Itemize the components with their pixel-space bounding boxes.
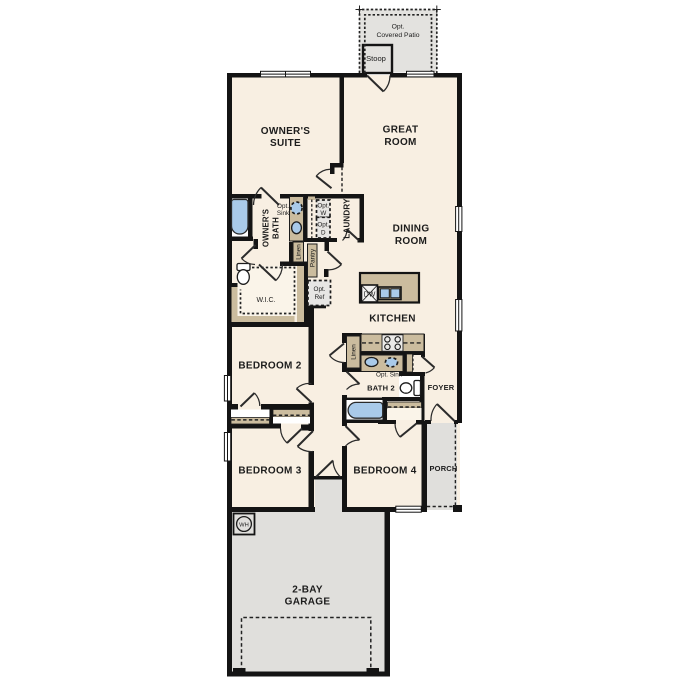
svg-text:GREAT: GREAT	[383, 125, 419, 136]
svg-text:ROOM: ROOM	[384, 137, 416, 148]
svg-text:W.I.C.: W.I.C.	[256, 297, 275, 304]
svg-text:KITCHEN: KITCHEN	[369, 314, 416, 325]
svg-text:FOYER: FOYER	[428, 383, 455, 392]
svg-text:OWNER'S: OWNER'S	[261, 126, 311, 137]
svg-text:2-BAY: 2-BAY	[292, 585, 323, 596]
svg-text:LAUNDRY: LAUNDRY	[343, 198, 352, 239]
svg-text:D: D	[321, 230, 326, 237]
svg-text:Stoop: Stoop	[366, 54, 386, 63]
svg-text:ROOM: ROOM	[395, 236, 427, 247]
svg-text:SUITE: SUITE	[270, 138, 301, 149]
svg-text:Opt.: Opt.	[314, 286, 326, 293]
svg-text:BATH 2: BATH 2	[367, 384, 395, 393]
svg-text:Opt.: Opt.	[317, 203, 329, 210]
svg-text:Linen: Linen	[296, 244, 303, 260]
svg-text:DINING: DINING	[393, 224, 430, 235]
svg-text:Ref: Ref	[315, 294, 325, 301]
svg-text:WH: WH	[239, 523, 249, 529]
svg-text:PORCH: PORCH	[429, 464, 457, 473]
svg-text:Opt.: Opt.	[317, 222, 329, 229]
svg-text:Linen: Linen	[351, 344, 358, 360]
svg-text:Sink: Sink	[277, 210, 290, 217]
svg-text:BATH: BATH	[272, 217, 281, 239]
svg-text:Opt. Sink: Opt. Sink	[376, 372, 403, 379]
svg-text:DW: DW	[364, 292, 376, 299]
svg-text:Opt.: Opt.	[392, 24, 405, 31]
svg-text:BEDROOM 4: BEDROOM 4	[353, 466, 416, 477]
svg-text:Covered Patio: Covered Patio	[376, 32, 419, 39]
svg-text:Opt.: Opt.	[277, 203, 289, 210]
svg-text:W: W	[320, 210, 326, 217]
svg-text:BEDROOM 2: BEDROOM 2	[238, 361, 301, 372]
svg-text:BEDROOM 3: BEDROOM 3	[238, 466, 301, 477]
svg-text:GARAGE: GARAGE	[285, 597, 331, 608]
svg-text:OWNER'S: OWNER'S	[262, 209, 271, 247]
svg-text:Pantry: Pantry	[310, 248, 317, 267]
